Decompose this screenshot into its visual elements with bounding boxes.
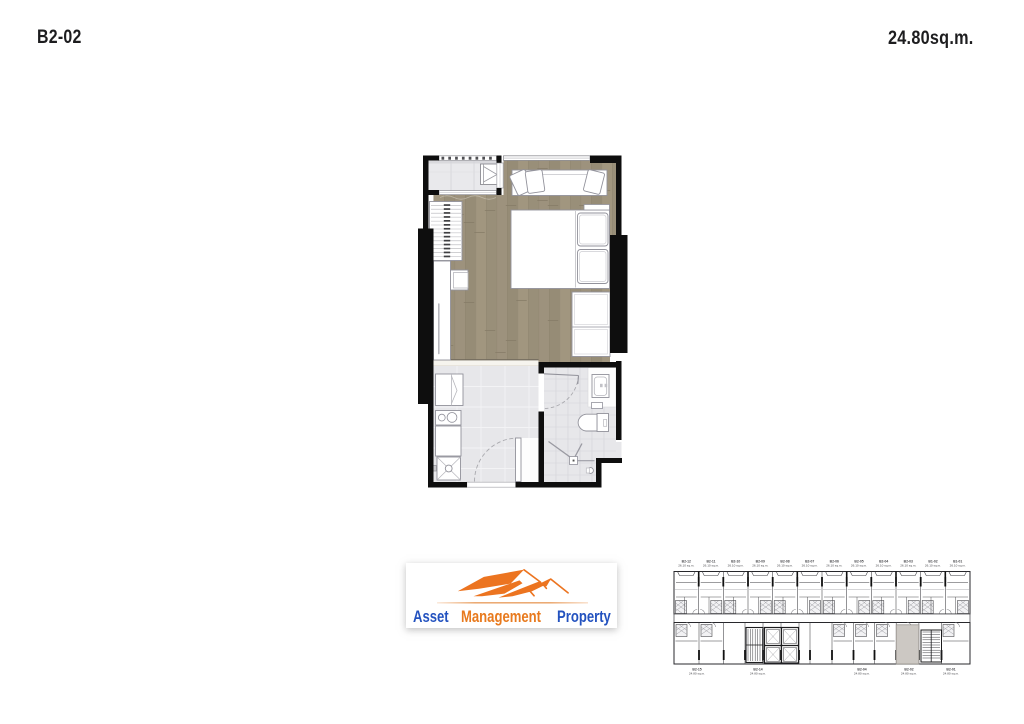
svg-text:24.80 sq.m.: 24.80 sq.m. [750, 672, 766, 676]
svg-text:26.10 sq.m.: 26.10 sq.m. [950, 564, 966, 568]
svg-text:26.10 sq.m.: 26.10 sq.m. [777, 564, 793, 568]
svg-text:26.10 sq.m.: 26.10 sq.m. [900, 564, 916, 568]
svg-text:26.10 sq.m.: 26.10 sq.m. [826, 564, 842, 568]
svg-text:26.10 sq.m.: 26.10 sq.m. [925, 564, 941, 568]
svg-text:26.10 sq.m.: 26.10 sq.m. [876, 564, 892, 568]
svg-text:26.10 sq.m.: 26.10 sq.m. [703, 564, 719, 568]
svg-text:24.80 sq.m.: 24.80 sq.m. [943, 672, 959, 676]
svg-text:24.80 sq.m.: 24.80 sq.m. [901, 672, 917, 676]
svg-text:26.10 sq.m.: 26.10 sq.m. [802, 564, 818, 568]
svg-text:26.10 sq.m.: 26.10 sq.m. [851, 564, 867, 568]
svg-text:24.80 sq.m.: 24.80 sq.m. [689, 672, 705, 676]
svg-text:26.10 sq.m.: 26.10 sq.m. [678, 564, 694, 568]
svg-text:24.80 sq.m.: 24.80 sq.m. [854, 672, 870, 676]
svg-text:26.10 sq.m.: 26.10 sq.m. [728, 564, 744, 568]
svg-text:26.10 sq.m.: 26.10 sq.m. [752, 564, 768, 568]
